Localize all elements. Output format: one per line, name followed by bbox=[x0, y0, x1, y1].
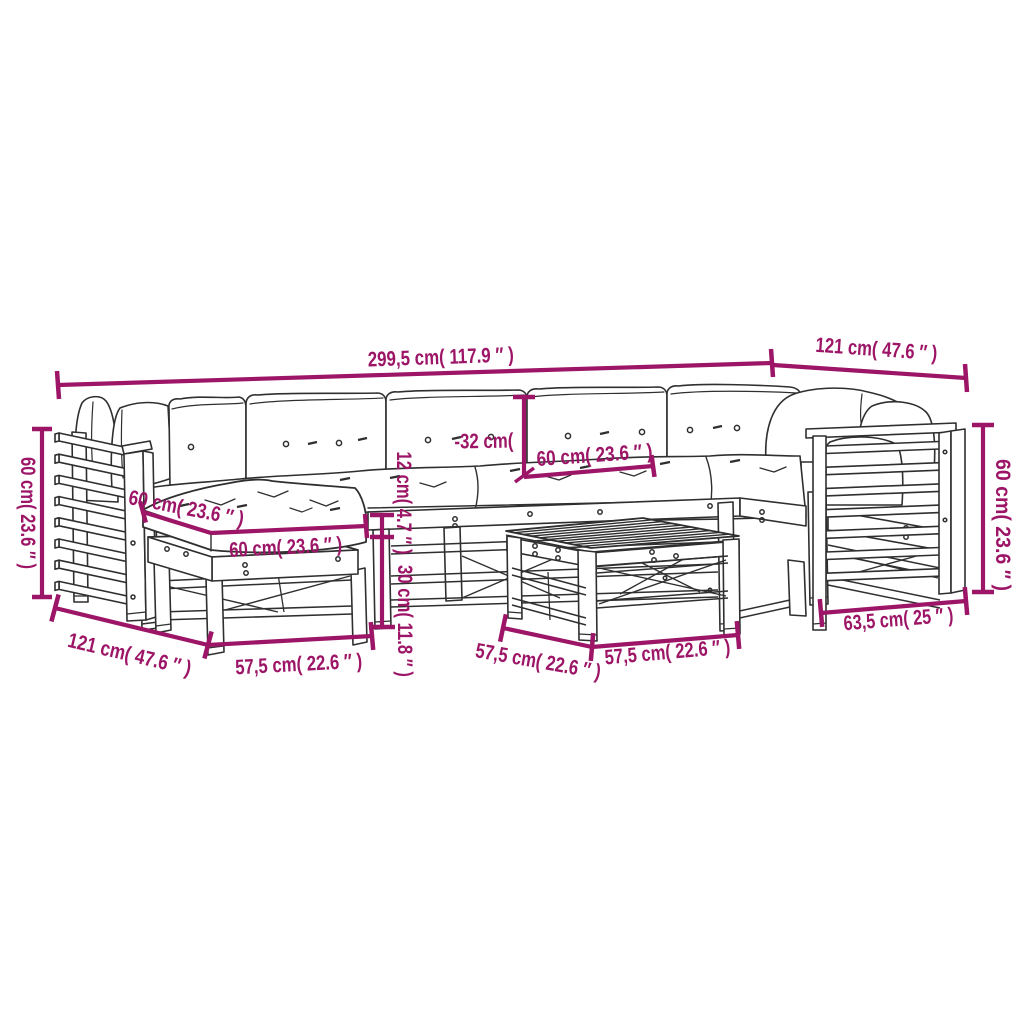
svg-text:30 cm( 11.8 ″ ): 30 cm( 11.8 ″ ) bbox=[393, 565, 416, 677]
svg-text:60 cm( 23.6 ″ ): 60 cm( 23.6 ″ ) bbox=[16, 457, 39, 569]
svg-text:12 cm( 4.7 ″ ): 12 cm( 4.7 ″ ) bbox=[392, 452, 415, 555]
svg-text:60 cm( 23.6 ″ ): 60 cm( 23.6 ″ ) bbox=[991, 459, 1014, 591]
svg-text:-32 cm(: -32 cm( bbox=[454, 429, 513, 453]
